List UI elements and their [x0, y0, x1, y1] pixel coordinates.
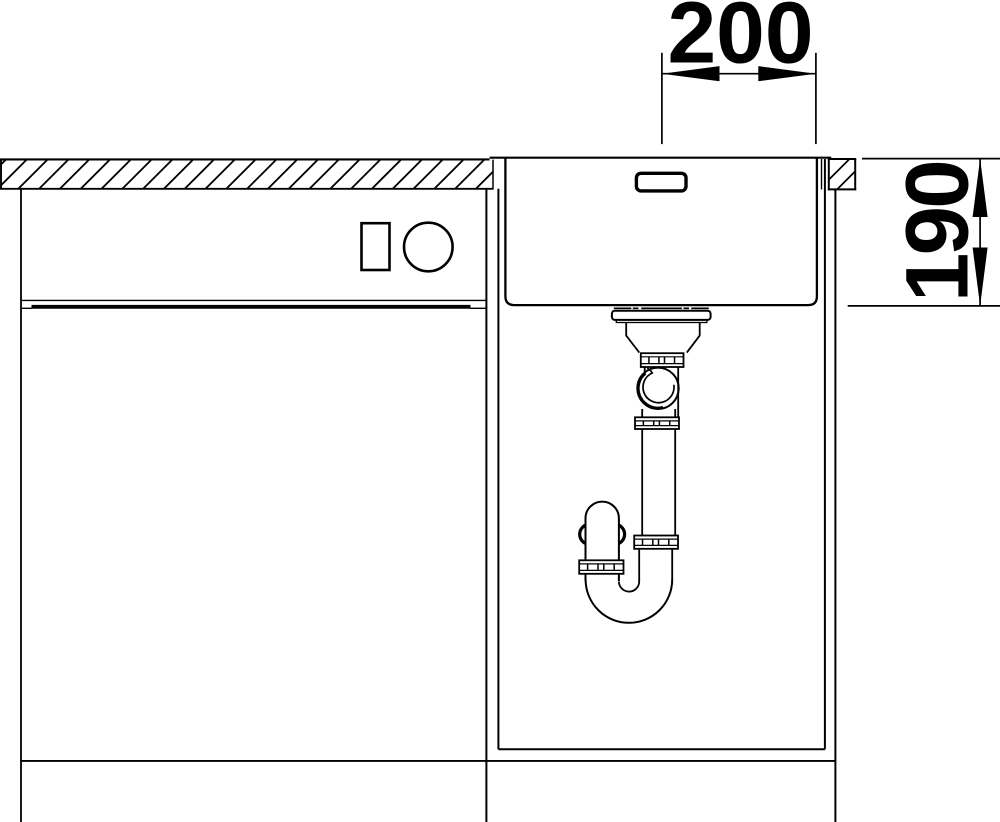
- svg-text:190: 190: [887, 162, 987, 302]
- svg-text:200: 200: [668, 0, 814, 82]
